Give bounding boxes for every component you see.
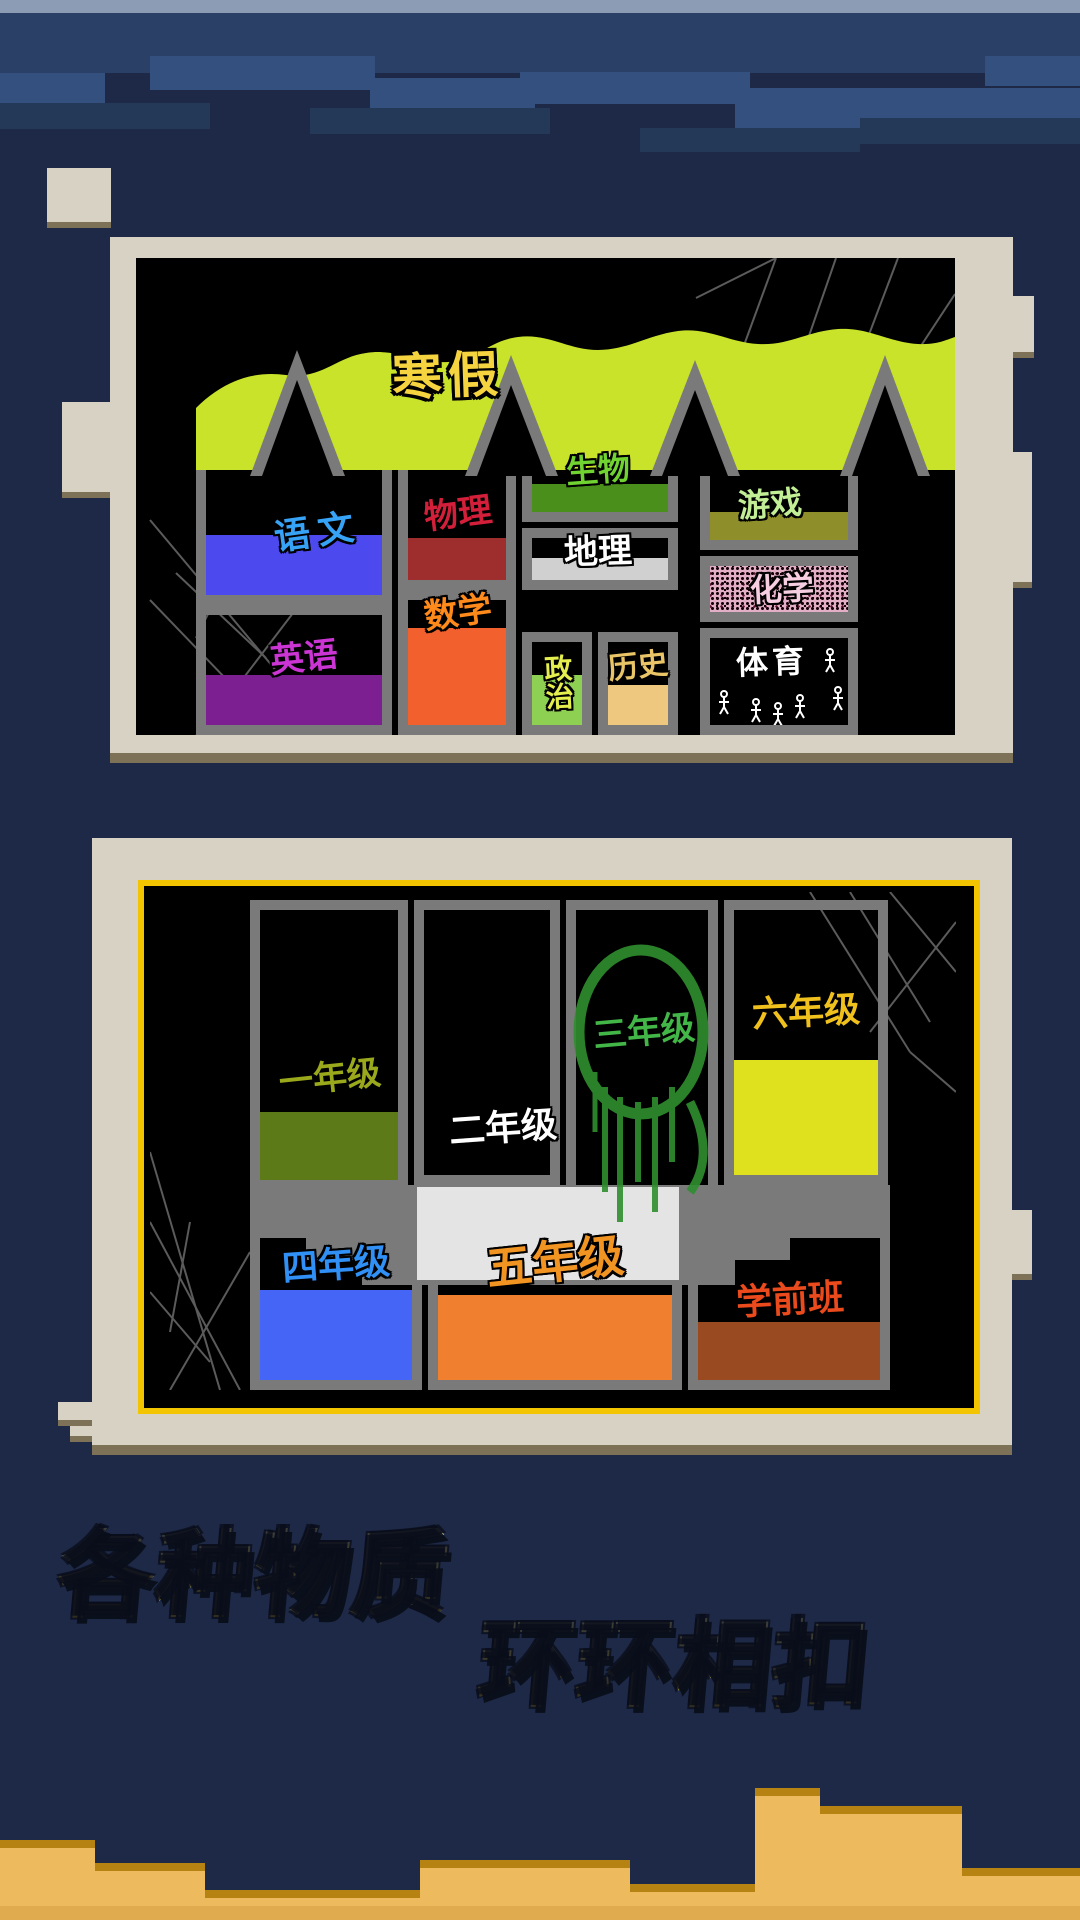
subject-label-shengwu: 生物 — [565, 452, 631, 488]
game-promo-screenshot: 寒假 语文 英语 物理 数学 生物 地理 政治 历史 游戏 化学 体育 — [0, 0, 1080, 1920]
subject-label-yingyu: 英语 — [268, 638, 339, 679]
sky-step — [0, 73, 105, 103]
sky-top-strip — [0, 0, 1080, 13]
sky-step — [520, 72, 750, 104]
tagline-line2: 环环相扣 — [474, 1618, 874, 1714]
grade-label-3: 三年级 — [592, 1011, 697, 1054]
bottom-panel-screen: 一年级 二年级 三年级 六年级 四年级 五年级 学前班 — [138, 880, 980, 1414]
sky-step — [150, 56, 375, 90]
subject-label-huaxue: 化学 — [749, 571, 815, 606]
subject-label-wuli: 物理 — [422, 493, 494, 535]
sky-shadow-step — [310, 108, 550, 134]
sky-shadow-step — [860, 118, 1080, 144]
sky-step — [985, 56, 1080, 86]
sky-shadow-step — [640, 128, 860, 152]
bottom-panel-frame: 一年级 二年级 三年级 六年级 四年级 五年级 学前班 — [92, 838, 1012, 1455]
bottom-panel-inner: 一年级 二年级 三年级 六年级 四年级 五年级 学前班 — [150, 892, 956, 1390]
sand-bottom-strip — [0, 1906, 1080, 1920]
subject-label-zhengzhi: 政治 — [542, 653, 573, 710]
subject-label-shuxue: 数学 — [422, 591, 494, 634]
subject-label-youxi: 游戏 — [737, 486, 803, 522]
top-panel-screen: 寒假 语文 英语 物理 数学 生物 地理 政治 历史 游戏 化学 体育 — [136, 258, 955, 735]
top-panel-frame: 寒假 语文 英语 物理 数学 生物 地理 政治 历史 游戏 化学 体育 — [110, 237, 1013, 763]
grade-label-4: 四年级 — [281, 1243, 391, 1286]
grade-label-preschool: 学前班 — [735, 1279, 845, 1321]
grade-label-6: 六年级 — [751, 991, 861, 1033]
winter-vacation-title: 寒假 — [391, 349, 505, 403]
sky-step — [370, 78, 535, 108]
subject-label-tiyu: 体育 — [735, 645, 808, 679]
sky-shadow-step — [0, 103, 210, 129]
sand-step — [755, 1788, 820, 1920]
subject-label-dili: 地理 — [563, 534, 632, 570]
sand-step — [820, 1806, 962, 1920]
tagline-line1: 各种物质 — [54, 1528, 454, 1624]
subject-label-lishi: 历史 — [607, 649, 670, 685]
grade-label-2: 二年级 — [448, 1106, 558, 1149]
frame-tab — [47, 168, 111, 228]
